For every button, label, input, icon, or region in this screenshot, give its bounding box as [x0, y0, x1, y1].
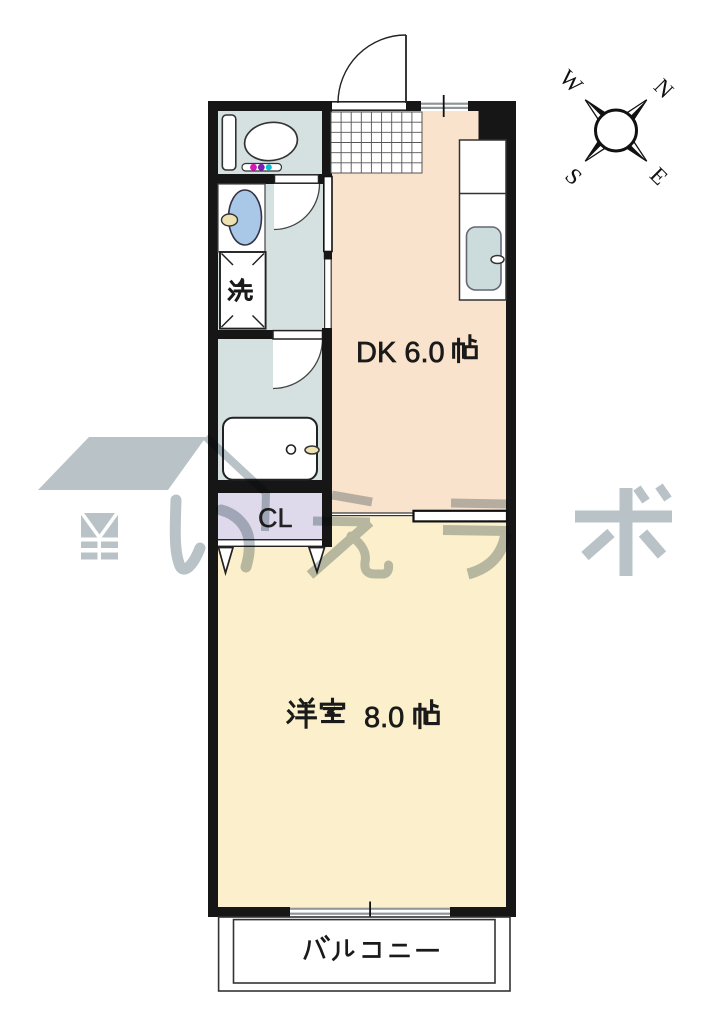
svg-text:DK 6.0: DK 6.0	[356, 337, 445, 369]
svg-text:8.0: 8.0	[364, 702, 404, 734]
